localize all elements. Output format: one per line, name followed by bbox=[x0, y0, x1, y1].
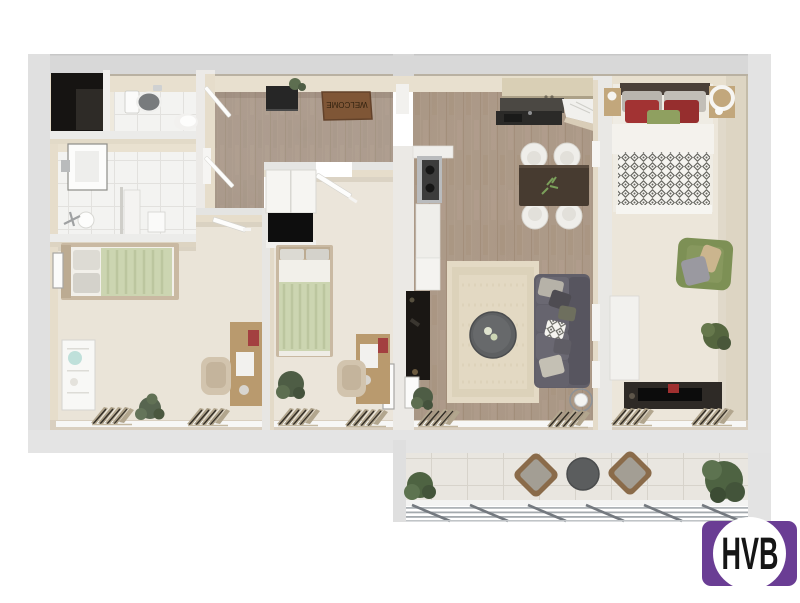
svg-text:HVB: HVB bbox=[722, 528, 779, 579]
svg-text:WELCOME: WELCOME bbox=[326, 100, 367, 109]
